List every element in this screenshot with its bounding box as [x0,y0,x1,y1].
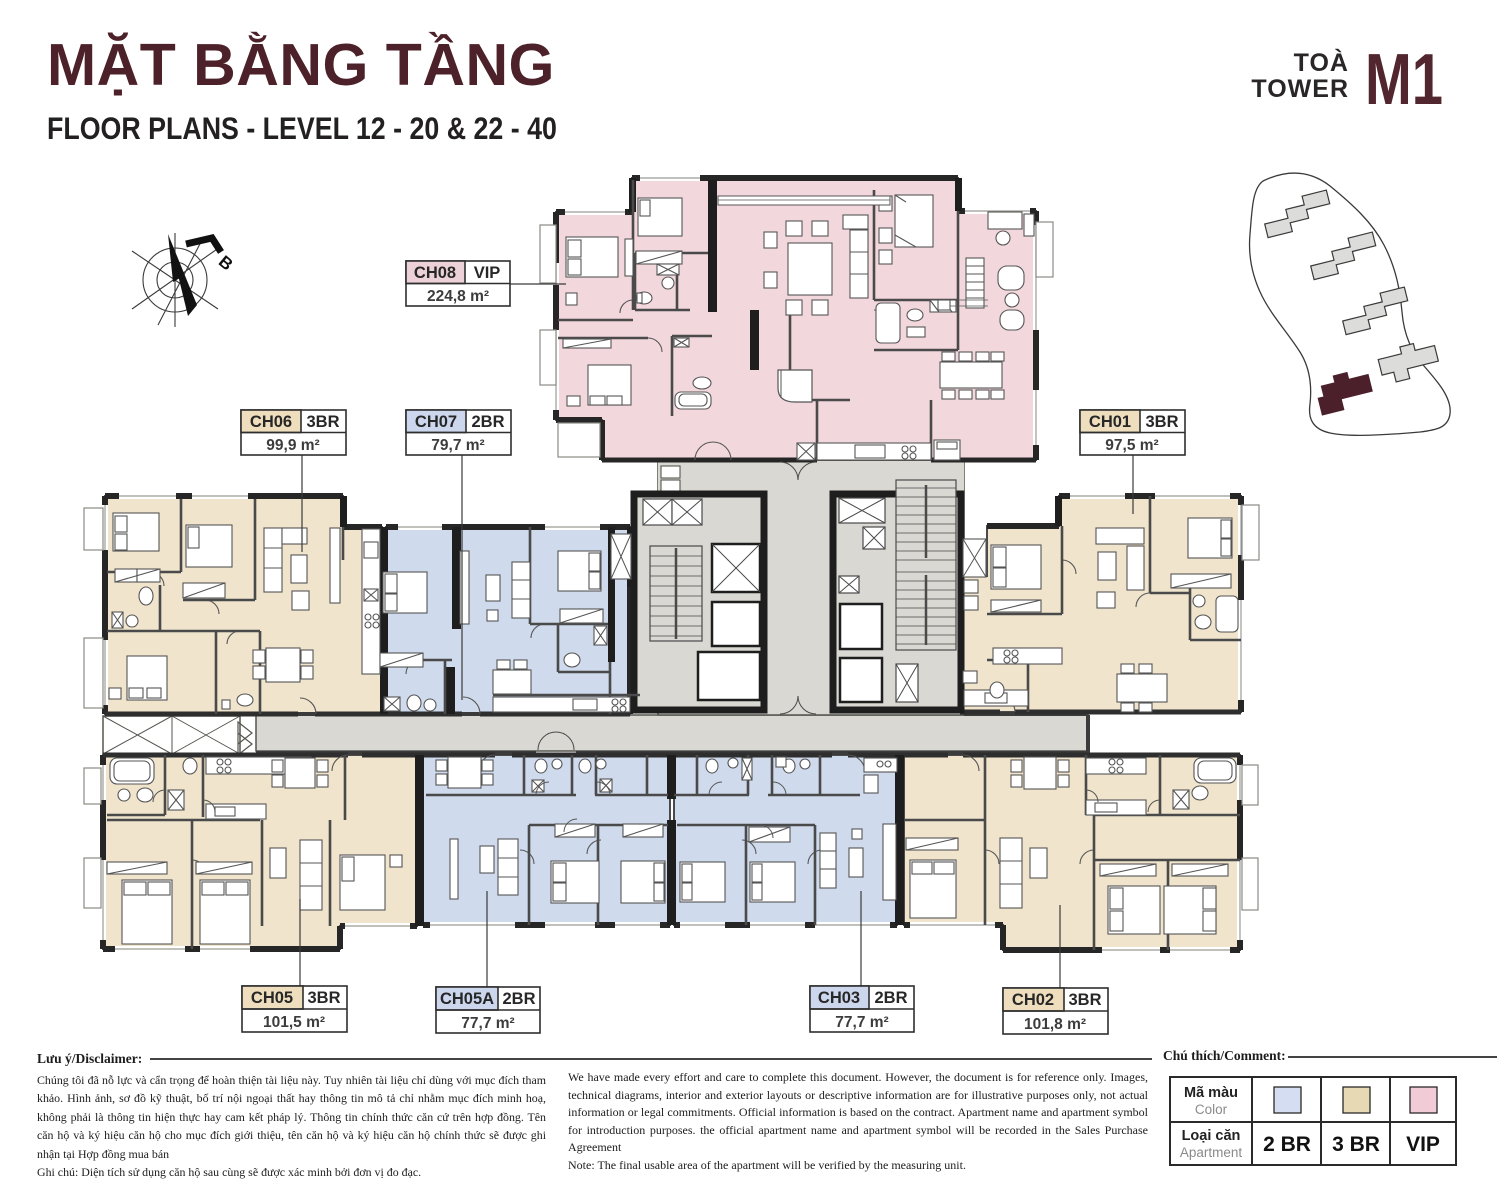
svg-text:2 BR: 2 BR [1263,1133,1311,1156]
svg-text:2BR: 2BR [874,989,907,1007]
svg-text:3BR: 3BR [1145,413,1178,431]
svg-text:101,8 m²: 101,8 m² [1024,1016,1086,1033]
svg-text:CH05: CH05 [251,989,293,1007]
svg-text:3 BR: 3 BR [1332,1133,1380,1156]
svg-text:CH02: CH02 [1012,991,1054,1009]
svg-text:B: B [215,252,237,274]
svg-text:CH03: CH03 [818,989,860,1007]
svg-text:3BR: 3BR [306,413,339,431]
svg-text:CH01: CH01 [1089,413,1131,431]
svg-text:97,5 m²: 97,5 m² [1105,437,1158,454]
svg-text:101,5 m²: 101,5 m² [263,1014,325,1031]
svg-text:77,7 m²: 77,7 m² [835,1014,888,1031]
svg-text:CH08: CH08 [414,264,456,282]
svg-text:2BR: 2BR [502,990,535,1008]
svg-text:79,7 m²: 79,7 m² [431,437,484,454]
svg-text:VIP: VIP [474,264,501,282]
svg-text:Color: Color [1195,1102,1228,1117]
svg-text:CH05A: CH05A [440,990,494,1008]
svg-text:3BR: 3BR [1068,991,1101,1009]
svg-text:Mã màu: Mã màu [1184,1085,1238,1101]
svg-text:3BR: 3BR [307,989,340,1007]
svg-text:77,7 m²: 77,7 m² [461,1015,514,1032]
svg-text:VIP: VIP [1406,1133,1440,1156]
svg-text:99,9 m²: 99,9 m² [266,437,319,454]
svg-text:2BR: 2BR [471,413,504,431]
svg-text:Apartment: Apartment [1180,1145,1243,1160]
svg-text:Loại căn: Loại căn [1182,1128,1241,1144]
svg-text:CH06: CH06 [250,413,292,431]
svg-text:224,8 m²: 224,8 m² [427,288,489,305]
svg-text:CH07: CH07 [415,413,457,431]
